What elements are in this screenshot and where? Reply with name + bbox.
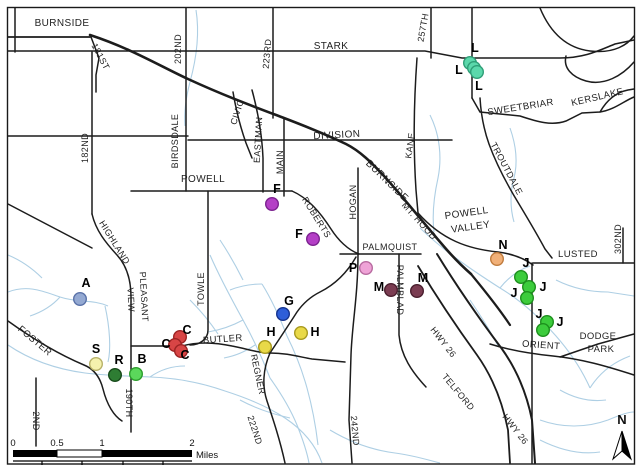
site-marker-label-r-2: R: [114, 353, 123, 367]
site-marker-p-12: [360, 262, 373, 275]
site-marker-label-j-17: J: [540, 280, 547, 294]
site-marker-l-23: [471, 66, 484, 79]
site-marker-label-l-23: L: [475, 79, 483, 93]
site-marker-label-c-5: C: [161, 337, 170, 351]
site-marker-label-n-15: N: [498, 238, 507, 252]
scale-segment-white: [57, 450, 102, 457]
road-label-stark: STARK: [314, 41, 349, 52]
road-label-lusted: LUSTED: [558, 249, 598, 260]
street-map: BURNSIDE181ST202ND182NDBIRDSDALE223RDSTA…: [0, 0, 640, 471]
site-marker-j-18: [521, 292, 534, 305]
site-marker-g-9: [277, 308, 290, 321]
site-marker-label-c-6: C: [180, 348, 189, 362]
scale-segment-black-1: [13, 450, 57, 457]
scale-segment-black-2: [102, 450, 192, 457]
site-marker-m-14: [411, 285, 424, 298]
site-marker-h-10: [259, 341, 272, 354]
map-canvas: BURNSIDE181ST202ND182NDBIRDSDALE223RDSTA…: [0, 0, 640, 471]
site-marker-label-j-20: J: [557, 315, 564, 329]
site-marker-h-11: [295, 327, 308, 340]
road-label-202nd: 202ND: [173, 34, 183, 64]
road-label-182nd: 182ND: [80, 133, 90, 163]
site-marker-label-l-22: L: [455, 63, 463, 77]
site-marker-label-j-16: J: [523, 256, 530, 270]
site-marker-label-j-18: J: [511, 286, 518, 300]
site-marker-label-p-12: P: [349, 261, 357, 275]
site-marker-label-j-19: J: [536, 307, 543, 321]
road-label-towle: TOWLE: [196, 272, 206, 306]
site-marker-a-0: [74, 293, 87, 306]
site-marker-j-20: [537, 324, 550, 337]
site-marker-label-m-14: M: [418, 271, 428, 285]
site-marker-s-1: [90, 358, 103, 371]
scale-tick-0.5: 0.5: [50, 438, 63, 449]
site-marker-label-h-10: H: [266, 325, 275, 339]
site-marker-label-f-7: F: [273, 182, 281, 196]
road-label-302nd: 302ND: [613, 224, 623, 254]
site-marker-m-13: [385, 284, 398, 297]
road-label-park: PARK: [588, 344, 615, 355]
road-label-dodge: DODGE: [580, 331, 617, 342]
site-marker-label-m-13: M: [374, 280, 384, 294]
road-label-view: VIEW: [125, 287, 136, 312]
site-marker-label-g-9: G: [284, 294, 294, 308]
road-label-main: MAIN: [275, 150, 285, 174]
road-label-190th: 190TH: [124, 388, 134, 417]
road-label-hogan: HOGAN: [348, 184, 358, 219]
site-marker-f-7: [266, 198, 279, 211]
scale-tick-1: 1: [99, 438, 104, 449]
site-marker-label-s-1: S: [92, 342, 100, 356]
site-marker-label-f-8: F: [295, 227, 303, 241]
site-marker-label-l-21: L: [471, 41, 479, 55]
scale-tick-0: 0: [10, 438, 15, 449]
site-marker-n-15: [491, 253, 504, 266]
site-marker-b-3: [130, 368, 143, 381]
scale-tick-2: 2: [189, 438, 194, 449]
site-marker-label-a-0: A: [81, 276, 90, 290]
site-marker-label-b-3: B: [137, 352, 146, 366]
road-label-birdsdale: BIRDSDALE: [170, 114, 180, 169]
scale-unit-label: Miles: [196, 450, 218, 461]
road-label-palmquist: PALMQUIST: [363, 242, 418, 252]
site-marker-f-8: [307, 233, 320, 246]
north-label: N: [617, 412, 626, 427]
road-label-2nd: 2ND: [31, 411, 41, 430]
road-label-burnside: BURNSIDE: [35, 18, 90, 29]
site-marker-r-2: [109, 369, 122, 382]
site-marker-label-h-11: H: [310, 325, 319, 339]
map-background: [0, 0, 640, 471]
site-marker-label-c-4: C: [182, 323, 191, 337]
road-label-powell: POWELL: [181, 174, 225, 185]
